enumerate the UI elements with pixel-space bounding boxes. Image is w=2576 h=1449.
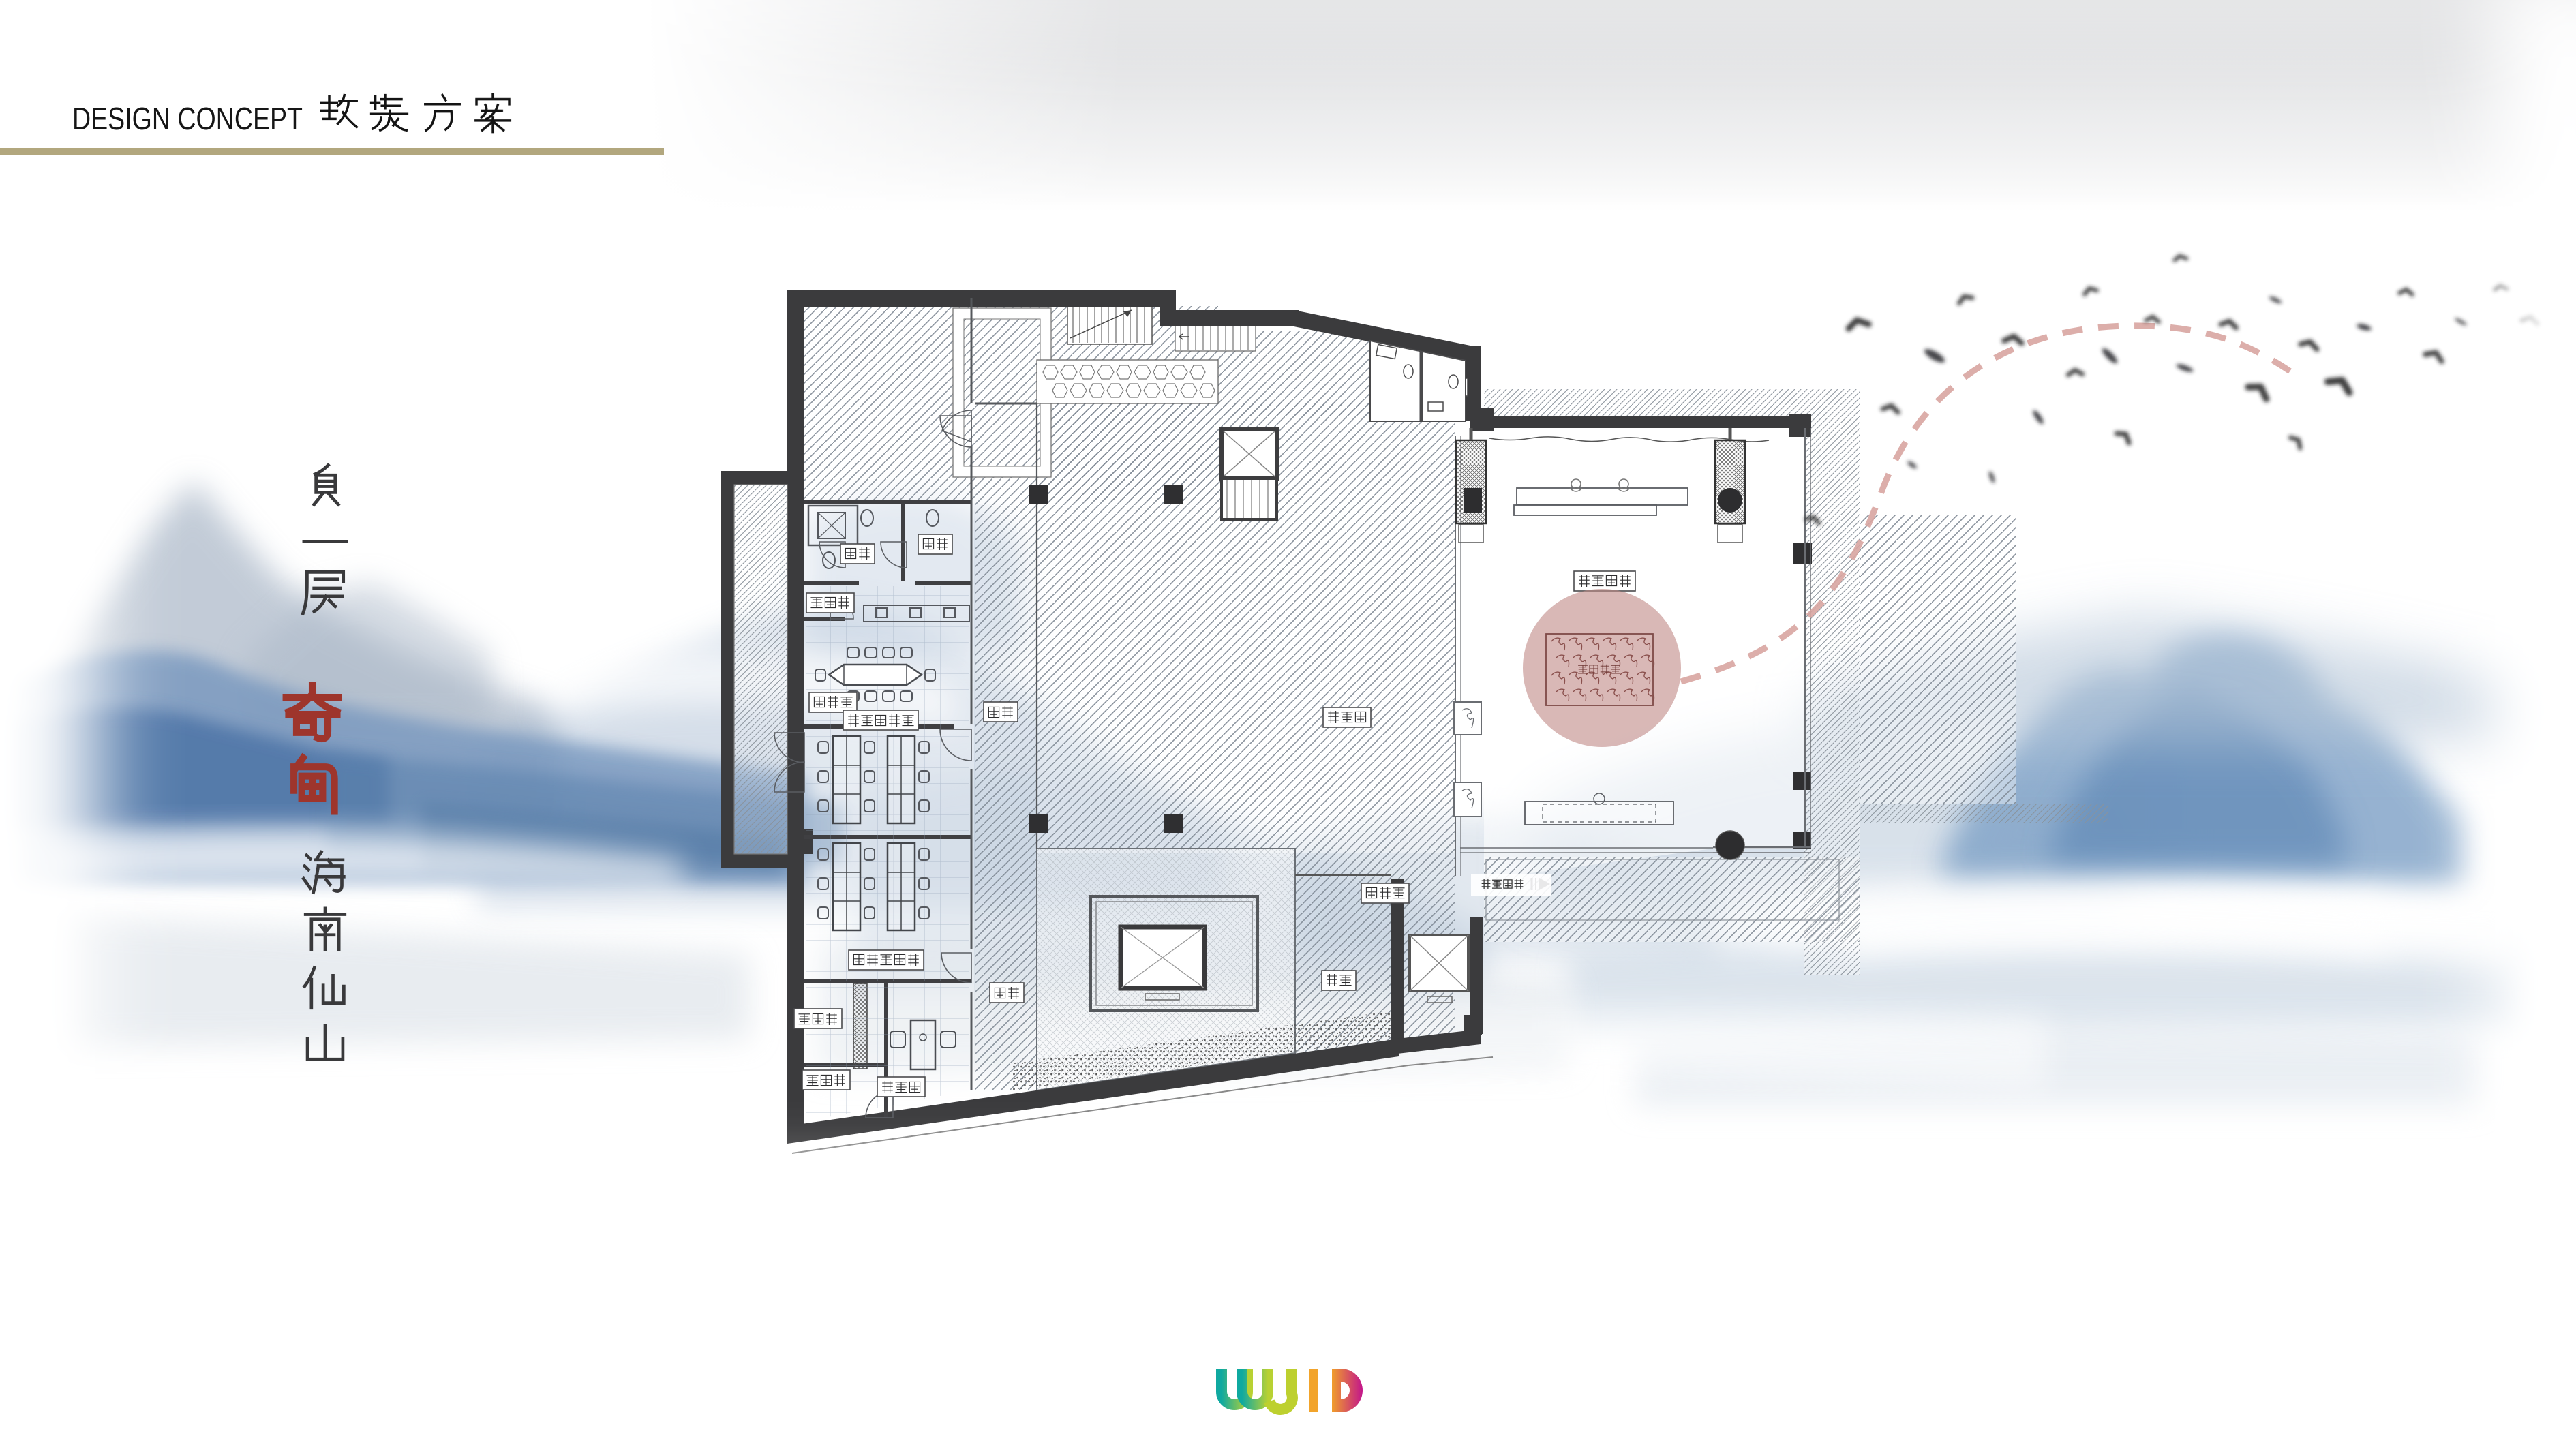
svg-text:DESIGN CONCEPT: DESIGN CONCEPT (72, 101, 303, 136)
